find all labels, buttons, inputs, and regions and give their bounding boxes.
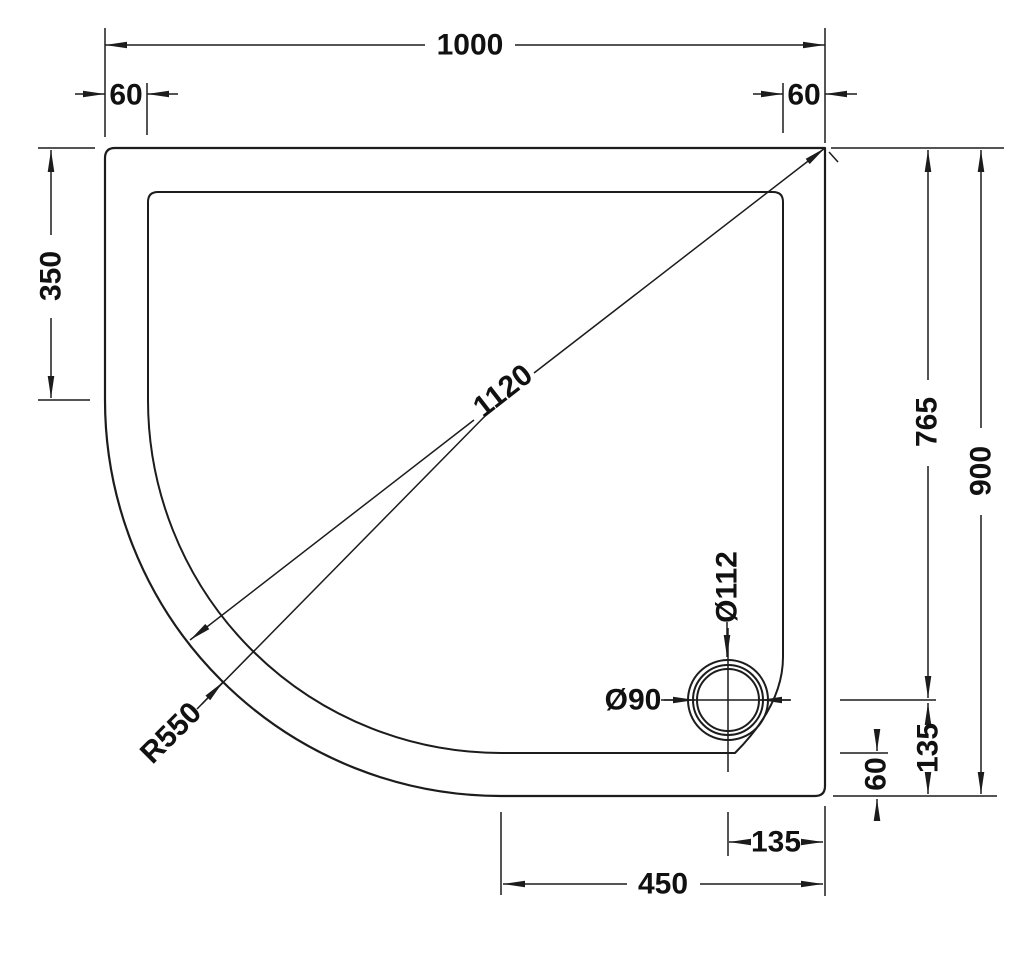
dim-top-width-label: 1000 (437, 29, 504, 62)
dim-top-left-rim-label: 60 (109, 79, 142, 112)
dim-right-900-label: 900 (965, 446, 998, 496)
dim-waste-inner-dia-label: Ø90 (605, 684, 662, 717)
dimension-labels: 1000 60 60 350 765 900 135 60 135 450 11… (35, 29, 998, 901)
dim-waste-to-right-label: 135 (751, 826, 801, 859)
dim-waste-to-bottom-label: 135 (912, 723, 945, 773)
radius-leader-line (197, 412, 489, 709)
dimension-lines (51, 45, 981, 884)
tray-outer-edge (105, 148, 825, 796)
corner-tick (829, 152, 838, 162)
tray-inner-edge (148, 192, 783, 753)
dim-bottom-width-label: 450 (638, 868, 688, 901)
technical-drawing: 1000 60 60 350 765 900 135 60 135 450 11… (0, 0, 1024, 957)
tray-outline (105, 148, 825, 796)
dim-corner-radius-label: R550 (134, 696, 208, 770)
dim-top-right-rim-label: 60 (787, 79, 820, 112)
dim-bottom-rim-label: 60 (860, 757, 893, 790)
dim-waste-outer-dia-label: Ø112 (711, 551, 744, 623)
dim-diagonal-label: 1120 (467, 358, 539, 424)
dim-left-height-label: 350 (35, 251, 68, 301)
drawing-svg: 1000 60 60 350 765 900 135 60 135 450 11… (0, 0, 1024, 957)
dim-right-765-label: 765 (911, 397, 944, 447)
